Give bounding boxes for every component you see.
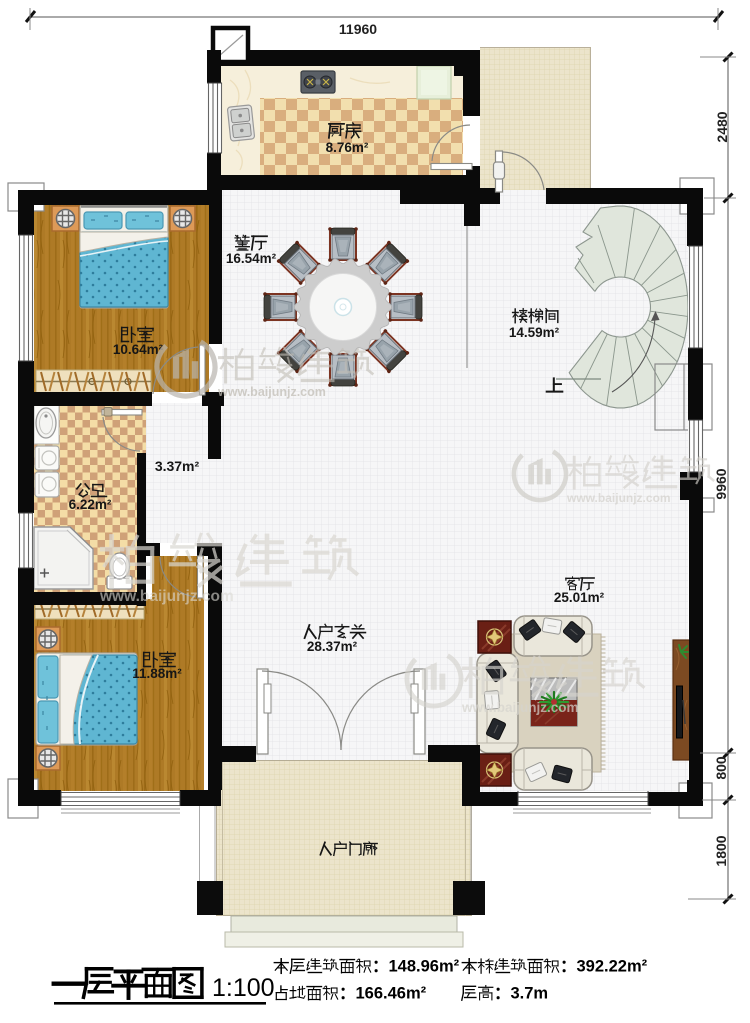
svg-text:2480: 2480	[714, 111, 730, 142]
svg-text:www.baijunjz.com: www.baijunjz.com	[99, 588, 234, 605]
svg-text:：392.22m²: ：392.22m²	[560, 958, 648, 976]
svg-text:www.baijunjz.com: www.baijunjz.com	[566, 491, 671, 505]
svg-text:16.54m²: 16.54m²	[226, 251, 277, 266]
svg-text:：3.7m: ：3.7m	[494, 985, 548, 1003]
svg-text:10.64m²: 10.64m²	[113, 342, 164, 357]
svg-text:28.37m²: 28.37m²	[307, 639, 358, 654]
svg-text:1:100: 1:100	[212, 974, 275, 1002]
svg-text:9960: 9960	[713, 468, 729, 499]
svg-text:11.88m²: 11.88m²	[132, 666, 182, 681]
svg-text:3.37m²: 3.37m²	[155, 458, 200, 474]
svg-text:：166.46m²: ：166.46m²	[339, 985, 427, 1003]
svg-text:8.76m²: 8.76m²	[326, 140, 369, 155]
svg-text:1800: 1800	[713, 835, 729, 866]
svg-text:800: 800	[713, 756, 729, 780]
svg-text:14.59m²: 14.59m²	[509, 325, 560, 340]
svg-text:：148.96m²: ：148.96m²	[372, 958, 460, 976]
svg-text:25.01m²: 25.01m²	[554, 590, 605, 605]
svg-text:11960: 11960	[339, 21, 377, 37]
svg-text:6.22m²: 6.22m²	[69, 497, 112, 512]
svg-text:www.baijunjz.com: www.baijunjz.com	[217, 385, 326, 399]
svg-text:www.baijunjz.com: www.baijunjz.com	[461, 700, 579, 715]
